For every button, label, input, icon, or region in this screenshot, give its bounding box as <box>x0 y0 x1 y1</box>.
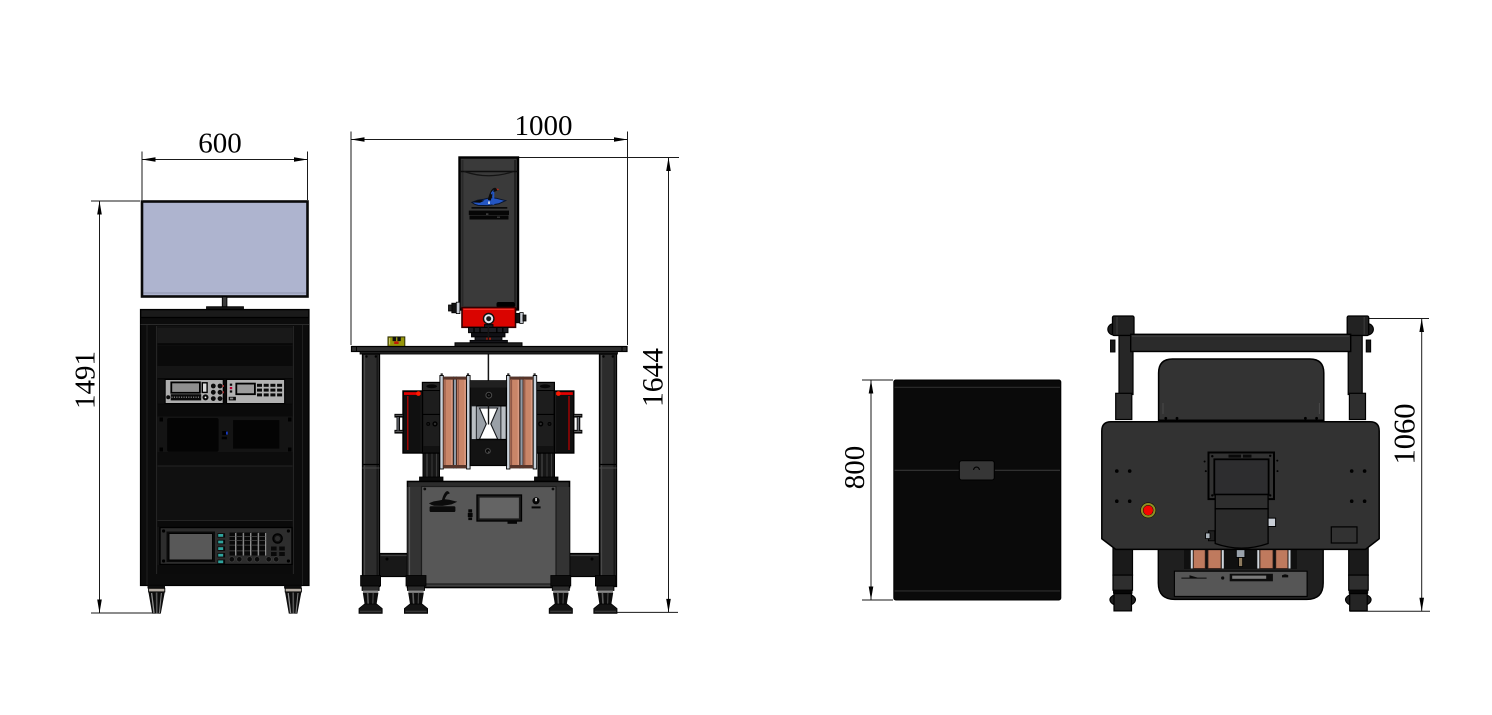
svg-text:1644: 1644 <box>638 348 670 407</box>
svg-text:1000: 1000 <box>515 110 573 142</box>
svg-text:1060: 1060 <box>1388 404 1422 465</box>
svg-text:600: 600 <box>198 128 242 160</box>
svg-text:800: 800 <box>839 446 871 490</box>
svg-text:1491: 1491 <box>70 351 102 409</box>
